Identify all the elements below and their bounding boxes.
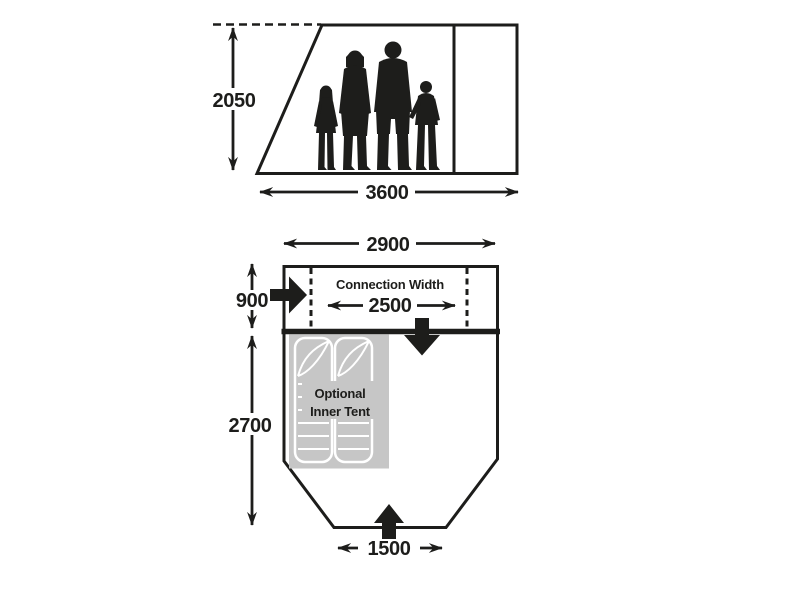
dim-front-door-width: 1500 — [338, 538, 442, 560]
side-height-label: 2050 — [213, 90, 256, 112]
dim-connection-width: 2500 — [328, 295, 455, 317]
dim-side-width: 3600 — [260, 181, 518, 204]
inner-tent-label-line1: Optional — [314, 386, 365, 401]
girl-silhouette — [314, 86, 338, 171]
connection-depth-label: 900 — [236, 290, 268, 312]
floor-plan: 2900 Connection Width 2500 900 — [227, 233, 500, 560]
tent-dimensions-diagram: 2050 3600 2900 Connection Width 2500 — [0, 0, 800, 600]
man-silhouette — [374, 42, 412, 171]
inner-tent-label-line2: Inner Tent — [310, 404, 371, 419]
side-width-label: 3600 — [366, 182, 409, 204]
connection-width-label: 2500 — [369, 295, 412, 317]
dim-total-width: 2900 — [284, 233, 495, 256]
front-door-arrow-up-icon — [374, 504, 404, 539]
inner-tent-area: Optional Inner Tent — [289, 335, 389, 469]
boy-silhouette — [409, 81, 440, 170]
connection-width-title: Connection Width — [336, 277, 444, 292]
total-width-label: 2900 — [367, 234, 410, 256]
connection-door-arrow-down-icon — [404, 318, 440, 356]
dim-connection-depth: 900 — [231, 264, 273, 328]
woman-silhouette — [339, 51, 371, 171]
family-silhouette-icon — [314, 42, 440, 171]
side-door-arrow-right-icon — [270, 277, 307, 314]
front-door-width-label: 1500 — [368, 538, 411, 560]
dim-main-depth: 2700 — [227, 336, 274, 525]
diagram-canvas: 2050 3600 2900 Connection Width 2500 — [0, 0, 800, 600]
dim-side-height: 2050 — [210, 28, 257, 170]
side-view: 2050 3600 — [210, 25, 518, 205]
main-depth-label: 2700 — [229, 415, 272, 437]
